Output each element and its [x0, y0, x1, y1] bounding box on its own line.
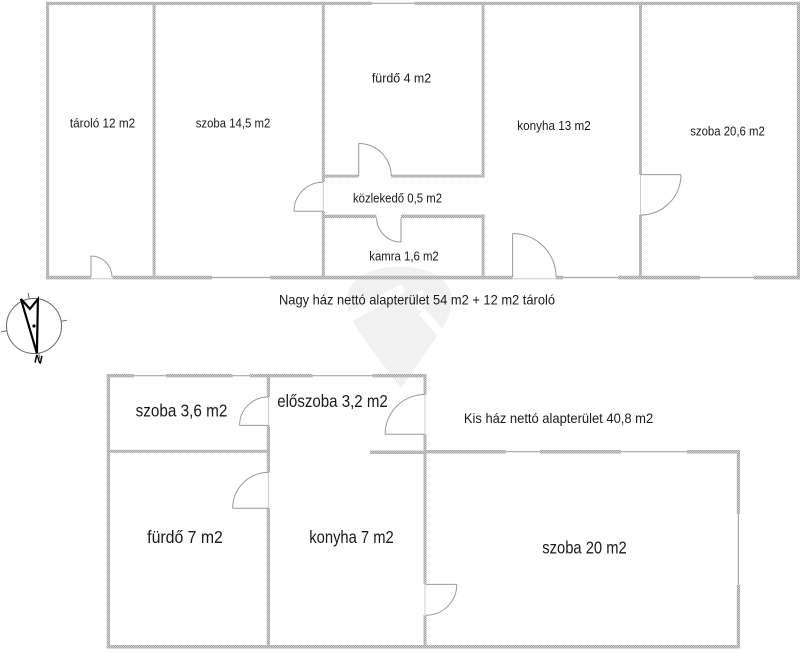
svg-text:szoba 20 m2: szoba 20 m2: [542, 538, 626, 558]
svg-text:N: N: [33, 353, 44, 366]
svg-text:szoba 3,6 m2: szoba 3,6 m2: [136, 400, 228, 420]
svg-text:konyha 7 m2: konyha 7 m2: [309, 527, 393, 547]
svg-text:Kis ház nettó alapterület 40,8: Kis ház nettó alapterület 40,8 m2: [464, 411, 653, 426]
svg-text:előszoba 3,2 m2: előszoba 3,2 m2: [277, 391, 388, 412]
svg-text:konyha 13 m2: konyha 13 m2: [517, 118, 591, 133]
svg-text:szoba 20,6 m2: szoba 20,6 m2: [690, 124, 765, 139]
svg-text:tároló 12 m2: tároló 12 m2: [70, 116, 135, 131]
svg-text:fürdő 4 m2: fürdő 4 m2: [372, 70, 431, 85]
svg-text:szoba 14,5 m2: szoba 14,5 m2: [196, 116, 271, 131]
svg-text:fürdő 7 m2: fürdő 7 m2: [147, 527, 223, 547]
svg-text:közlekedő 0,5 m2: közlekedő 0,5 m2: [353, 191, 442, 206]
svg-text:kamra 1,6 m2: kamra 1,6 m2: [369, 249, 439, 264]
svg-text:Nagy ház nettó alapterület 54: Nagy ház nettó alapterület 54 m2 + 12 m2…: [279, 292, 555, 307]
